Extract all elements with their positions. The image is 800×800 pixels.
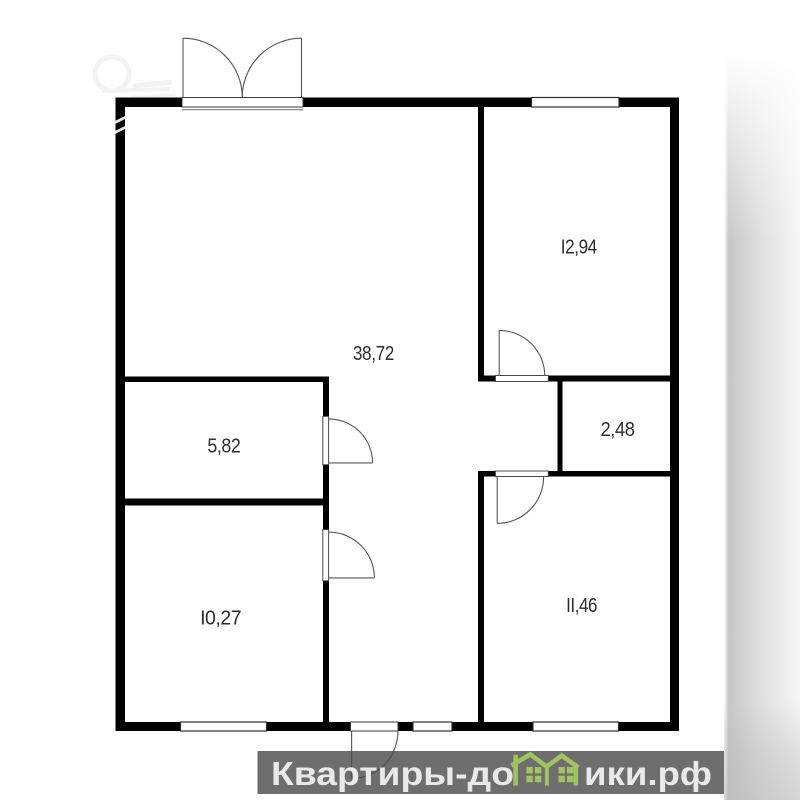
- svg-text:ики.рф: ики.рф: [584, 755, 712, 792]
- svg-text:38,72: 38,72: [353, 342, 394, 365]
- svg-text:Квартиры-до: Квартиры-до: [271, 755, 514, 792]
- svg-text:2,48: 2,48: [601, 418, 635, 441]
- svg-text:II,46: II,46: [566, 594, 597, 617]
- svg-text:I2,94: I2,94: [561, 236, 597, 259]
- svg-text:5,82: 5,82: [207, 435, 240, 458]
- svg-text:I0,27: I0,27: [200, 606, 241, 629]
